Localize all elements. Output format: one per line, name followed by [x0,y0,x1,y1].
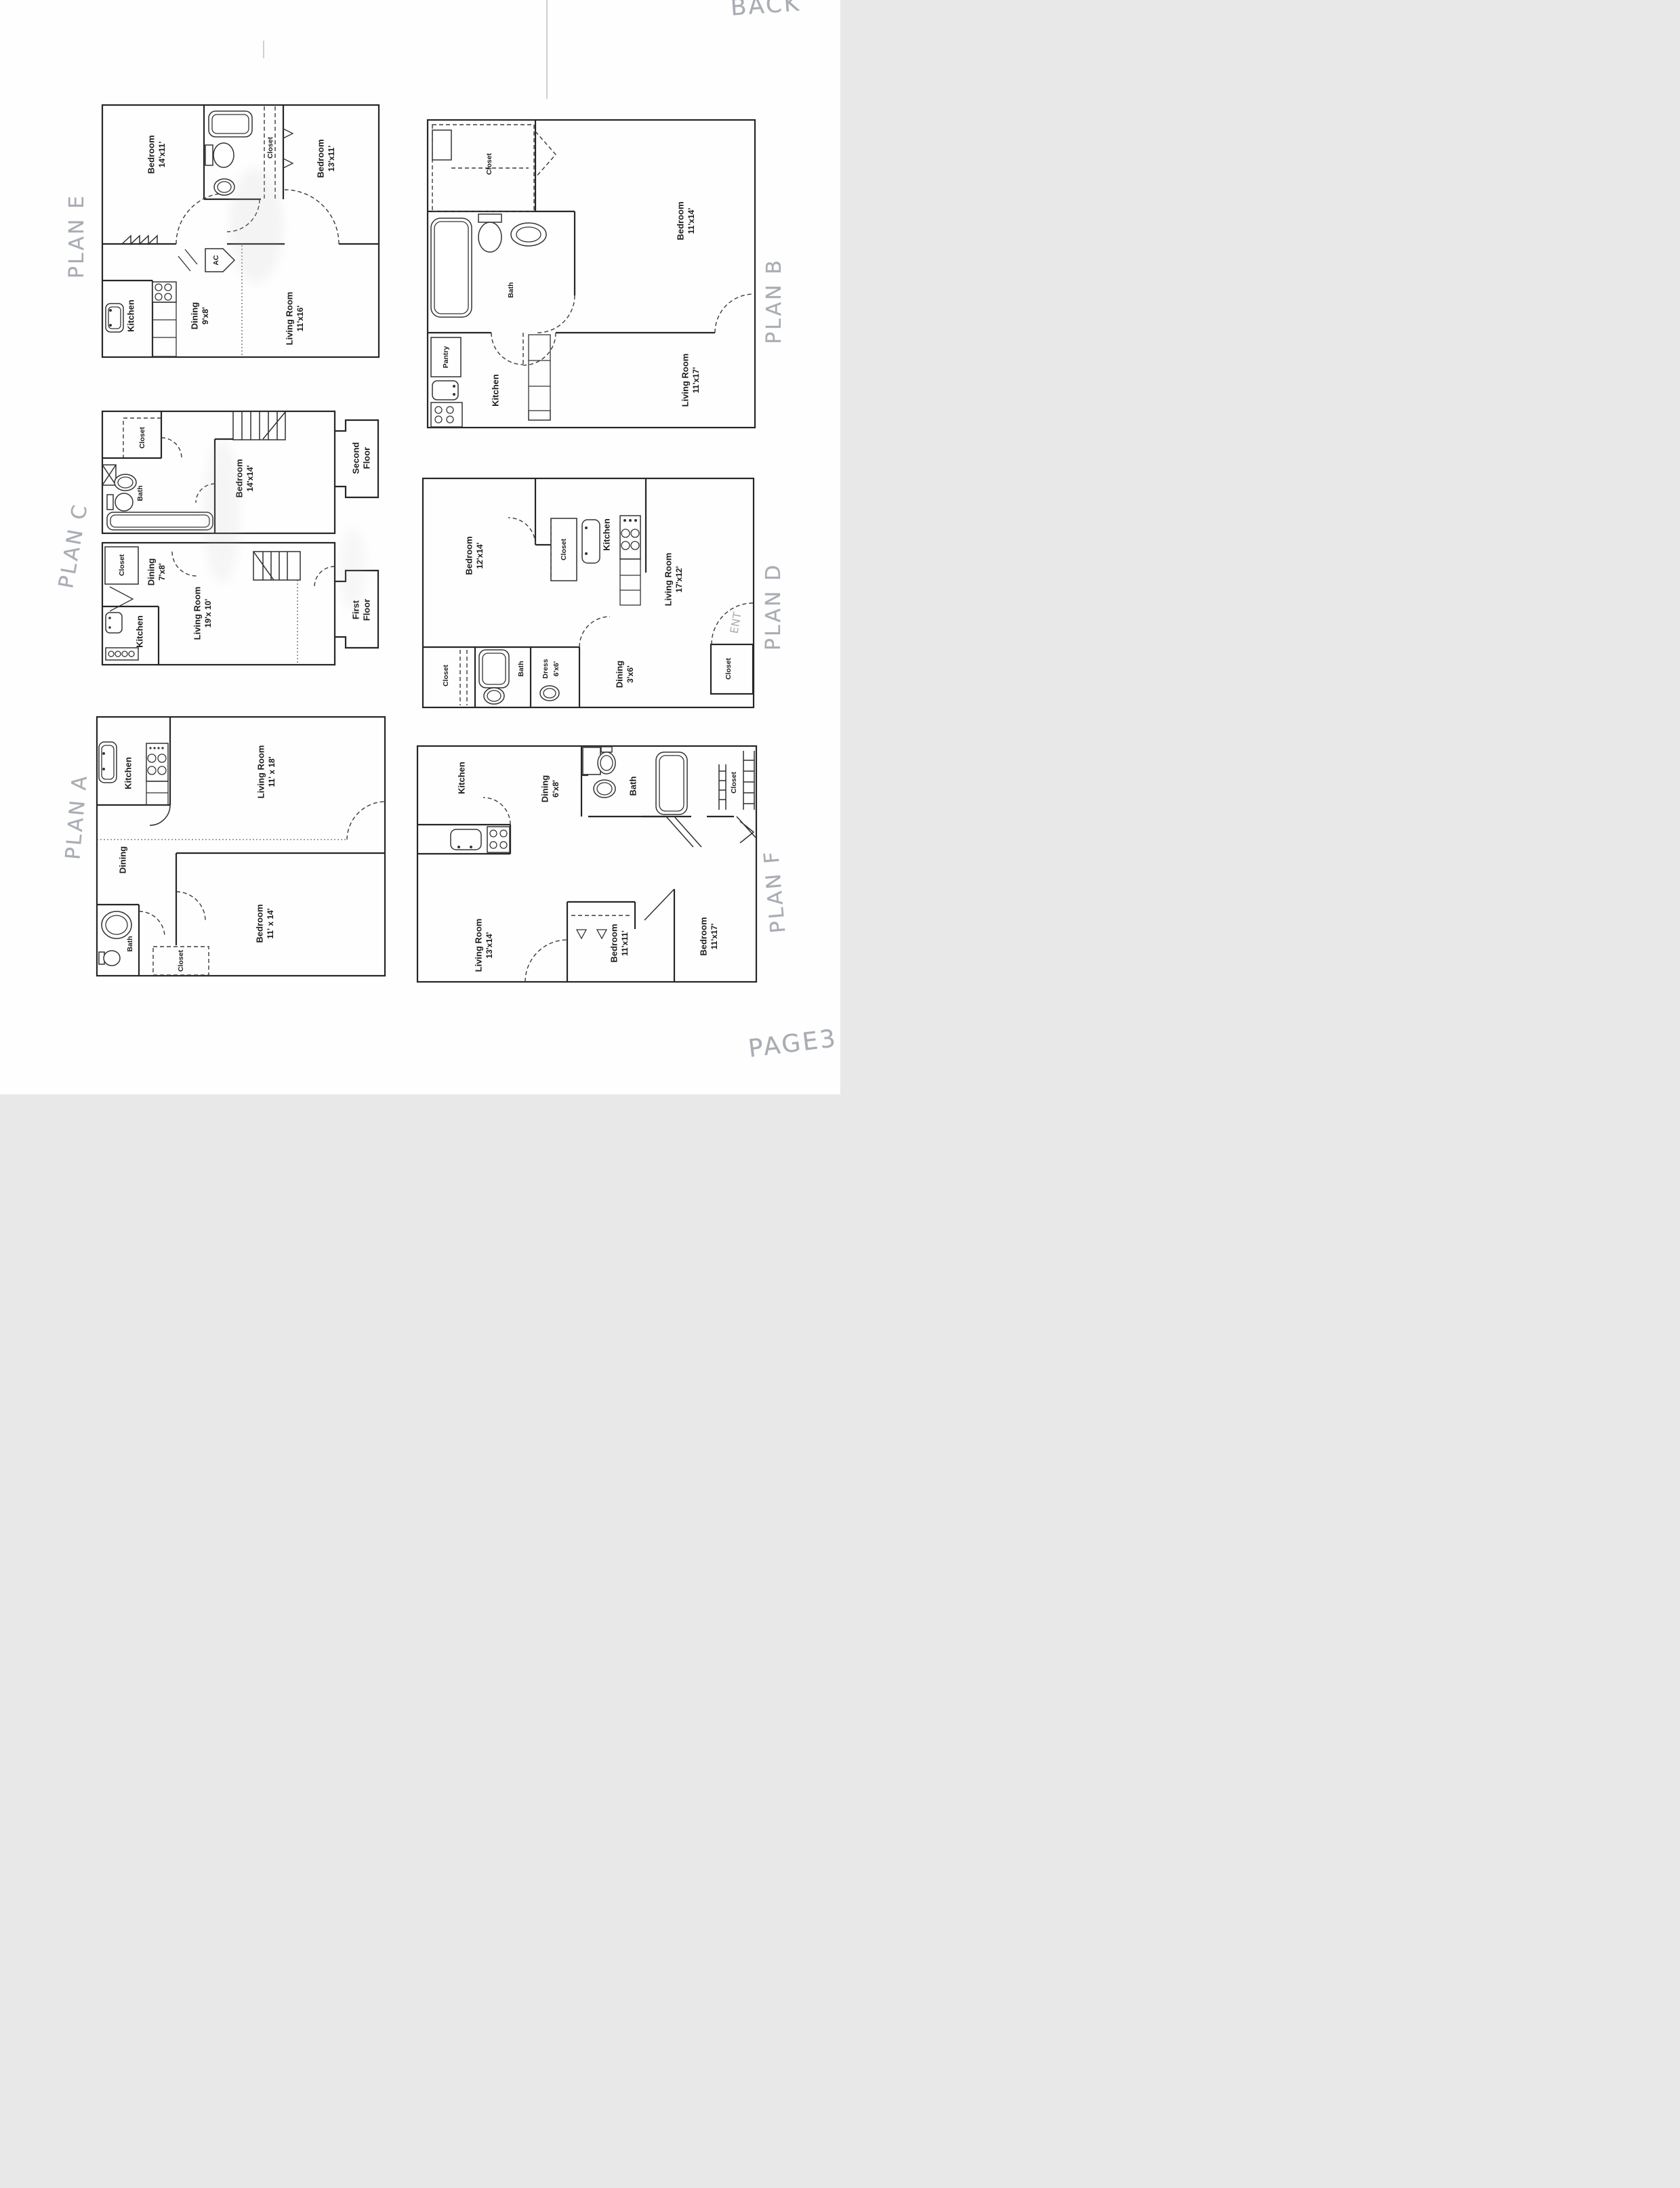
plan-d-counter [620,559,640,605]
plan-f-closet-notches [577,930,607,938]
toilet-icon [115,493,133,511]
plan-f-bedroom1-label: Bedroom [609,924,619,962]
plan-b-closet-chevron [535,131,556,178]
stairs-icon [253,552,300,580]
plan-c-dining-label: Dining [146,558,156,585]
plan-d-dress-dim: 6'x6' [552,661,560,677]
plan-f-bath-label: Bath [628,776,638,796]
stove-icon [431,402,462,427]
plan-f-kitchen-door-arc [483,798,510,825]
plan-a-bath-door-arc [139,911,165,937]
scanned-page: Bedroom 14'x11' Closet Bedroom 13'x11' K… [0,0,840,1094]
plan-f-double-door-diagonals [666,817,701,847]
plan-a-living-label: Living Room [255,745,266,799]
plan-c-1f-door-arc1 [172,552,197,576]
stove-icon [146,743,168,781]
plan-b-counter [529,335,550,420]
plan-a-bath-label: Bath [126,936,134,951]
plan-e-counter [152,302,176,356]
plan-e-living-label: Living Room [284,292,294,346]
plan-d-bedroom-dim: 12'x14' [475,542,485,569]
plan-e-dining-dim: 9'x8' [201,307,210,325]
plan-d-dining-label: Dining [614,661,624,688]
plan-f-dining-dim: 6'x8' [551,780,560,798]
kitchen-sink-icon [432,381,458,400]
kitchen-sink-icon [582,520,600,563]
plan-d-dress-label: Dress [541,659,550,678]
plan-d-ent-handwriting: ENT [727,611,743,634]
photocopy-ghost-1 [229,168,283,283]
plan-c-living-dim: 19'x 10' [203,599,213,628]
bath-sink-bracket [601,747,612,752]
plan-f-hall-door-arc [525,940,567,982]
plan-a-handwritten-label: PLAN A [63,762,90,871]
plan-f-living-dim: 13'x14' [485,932,494,958]
plan-d-living-label: Living Room [663,553,673,606]
bathtub-icon [431,218,472,317]
plan-d-closet-left-label: Closet [442,664,450,686]
plan-d-bedroom-door-arc [508,518,535,545]
page-number-handwriting: PAGE3 [725,1020,840,1067]
plan-c-handwritten-label: PLAN C [60,491,87,600]
plan-e-door-arc-bedroom1 [176,193,227,244]
dress-sink-icon [540,686,559,701]
plan-c-first-floor-label2: Floor [361,599,371,621]
plan-b-outer-wall [428,120,755,428]
plan-e-bedroom1-label: Bedroom [146,135,156,173]
plan-e-bedroom2-label: Bedroom [315,139,325,178]
plan-a-kitchen-door-arc [150,805,170,825]
plan-c-closet-upper-label: Closet [138,426,146,449]
plan-b-living-dim: 11'x17' [691,367,701,394]
plan-d-bath-label: Bath [517,661,525,676]
plan-b-closet-shelf [432,130,451,160]
plan-c-bath-label: Bath [136,485,144,501]
plan-b-living-label: Living Room [680,354,690,407]
plan-c-kitchen-label: Kitchen [134,615,144,648]
kitchen-sink-icon [451,829,481,850]
plan-c-closet-chevron [110,587,133,611]
floor-plan-d: Bedroom 12'x14' Closet Kitchen Living Ro… [422,478,756,708]
plan-c-living-label: Living Room [192,587,202,640]
plan-d-kitchen-label: Kitchen [601,518,611,551]
plan-b-handwritten-label: PLAN B [760,247,787,355]
toilet-tank-icon [205,145,213,165]
plan-a-outer-wall [97,717,385,976]
plan-a-kitchen-label: Kitchen [123,757,133,789]
plan-b-pantry-label: Pantry [442,346,450,369]
plan-f-kitchen-label: Kitchen [456,762,466,794]
plan-e-closet-door-notches [283,129,293,168]
plan-d-living-dim: 17'x12' [674,566,684,592]
plan-d-hall-door-arc [579,617,610,647]
plan-f-bedroom2-dim: 11'x17' [710,924,719,950]
plan-a-bedroom-dim: 11' x 14' [266,908,275,938]
window-icon [102,465,116,485]
photocopy-ghost-3 [339,529,366,610]
back-handwriting: BACK [698,0,834,20]
plan-e-bedroom2-dim: 13'x11' [327,146,336,172]
plan-c-1f-door-arc2 [314,566,335,587]
toilet-icon [478,222,501,252]
plan-b-bedroom-label: Bedroom [675,201,685,240]
toilet-icon [213,143,234,167]
plan-e-door-arc-bedroom2 [285,190,339,244]
plan-e-kitchen-label: Kitchen [125,300,136,332]
plan-f-bedroom2-label: Bedroom [698,917,708,955]
plan-a-bedroom-door-arc [176,892,205,921]
plan-b-kitchen-label: Kitchen [490,374,500,407]
plan-e-bedroom1-dim: 14'x11' [157,142,167,168]
plan-f-dining-label: Dining [539,775,550,802]
plan-a-entry-door-arc [347,802,385,840]
plan-f-closet-label: Closet [730,771,738,793]
plan-d-closet-br-label: Closet [724,657,733,680]
plan-a-bedroom-label: Bedroom [254,904,264,943]
plan-a-closet-label: Closet [177,949,185,972]
plan-d-outer-wall [423,478,754,707]
plan-f-living-label: Living Room [473,919,483,972]
plan-a-living-dim: 11' x 18' [267,756,276,787]
plan-c-closet-lower-label: Closet [118,554,126,576]
plan-c-dining-dim: 7'x8' [157,563,167,581]
plan-f-handwritten-label: PLAN F [762,837,789,945]
toilet-tank-icon [107,495,113,510]
plan-b-closet-label: Closet [485,152,493,175]
plan-c-second-floor-label1: Second [350,442,361,474]
stairs-icon [233,411,285,440]
plan-d-handwritten-label: PLAN D [760,552,787,661]
plan-a-dining-label: Dining [117,846,127,873]
plan-b-bedroom-door-arc [715,294,754,333]
floor-plan-b: Closet Bath Bedroom 11'x14' Pantry Kitch… [427,119,756,428]
stove-icon [620,516,640,559]
plan-e-closet-label: Closet [266,136,274,159]
plan-e-ac-label: AC [212,255,220,266]
floor-plan-a: Kitchen Living Room 11' x 18' Dining Bat… [96,716,386,976]
plan-b-bath-door-arc [537,295,575,333]
plan-d-bedroom-wall [535,478,551,545]
plan-b-bath-label: Bath [507,282,515,297]
toilet-icon [104,951,120,966]
plan-e-handwritten-label: PLAN E [63,182,90,290]
floor-plan-f: Kitchen Dining 6'x8' Bath Closet Living … [417,745,758,983]
scan-crease-dash [263,41,264,58]
closet-rod-icon [460,650,467,705]
plan-c-first-floor: Closet Dining 7'x8' Kitchen Living Room … [102,543,378,665]
toilet-tank-icon [478,214,501,222]
plan-e-living-dim: 11'x16' [295,306,305,332]
photocopy-ghost-2 [203,440,241,583]
plan-e-ac-swing-marks [178,249,197,271]
plan-b-bedroom-dim: 11'x14' [687,208,696,234]
plan-e-window-sawtooth [122,236,157,244]
plan-d-dining-dim: 3'x6' [626,665,635,683]
plan-e-dining-label: Dining [189,302,199,329]
plan-f-bedroom2-door-leaf [644,889,674,920]
plan-a-bedroom-walls [176,853,385,945]
plan-f-bedroom1-dim: 11'x11' [620,930,630,956]
stove-icon [487,827,510,852]
plan-d-bedroom-label: Bedroom [464,536,474,575]
kitchen-sink-icon [106,613,122,633]
scan-crease-line [546,0,548,99]
plan-d-closet-mid-label: Closet [560,538,568,560]
floor-plan-c: Closet Bath Bedroom 14'x14' Second Floor [102,411,381,667]
bathtub-icon [656,752,687,814]
plan-c-2f-door-arc1 [161,438,182,458]
plan-c-second-floor-label2: Floor [361,447,371,470]
plan-f-closet-door-arrow [737,817,756,843]
plan-c-bedroom-dim: 14'x14' [245,465,255,491]
